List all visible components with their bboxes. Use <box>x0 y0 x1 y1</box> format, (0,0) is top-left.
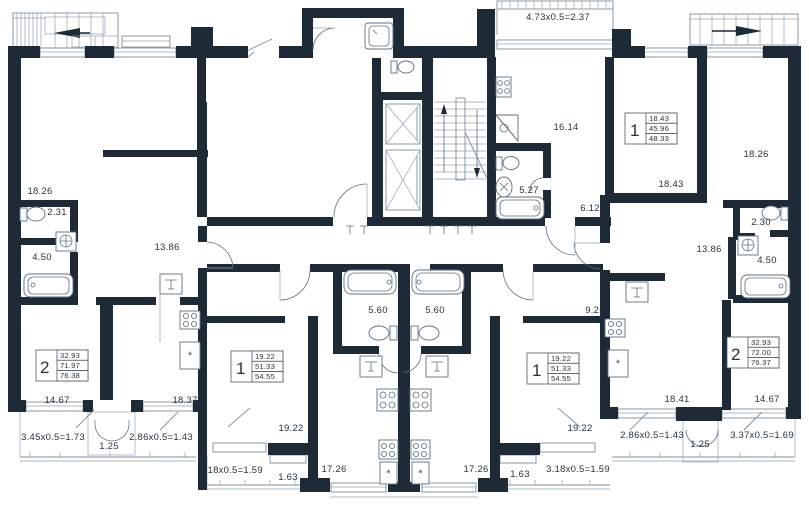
fridge-icon: * <box>412 462 429 484</box>
room-area-label: 2.31 <box>47 207 67 218</box>
sink-icon <box>738 236 758 255</box>
bathtub-icon <box>344 270 396 294</box>
balcony-dim-label: 3.45x0.5=1.73 <box>21 432 85 443</box>
room-area-label: 16.14 <box>553 122 578 133</box>
room-area-label: 18.41 <box>664 394 689 405</box>
room-area-label: 4.50 <box>32 252 52 263</box>
unit-area: 32.93 <box>60 351 80 360</box>
unit-table: 1 19.22 51.33 54.55 <box>527 353 579 384</box>
room-area-label: 6.12 <box>580 203 600 214</box>
unit-number: 1 <box>236 359 245 378</box>
stove-icon <box>379 440 398 459</box>
toilet-icon <box>369 326 397 340</box>
room-area-label: 17.26 <box>321 464 346 475</box>
room-area-label: 5.60 <box>368 305 388 316</box>
room-area-label: 19.22 <box>278 423 303 434</box>
bathtub-icon <box>24 274 73 297</box>
unit-area: 18.43 <box>649 114 669 123</box>
doors <box>76 28 762 430</box>
unit-area: 71.97 <box>60 361 80 370</box>
room-area-label: 13.86 <box>696 244 721 255</box>
walls <box>8 8 801 492</box>
room-area-label: 18.26 <box>27 186 52 197</box>
unit-table: 1 18.43 45.96 48.33 <box>625 113 677 144</box>
room-area-label: 18.26 <box>743 149 768 160</box>
bathtub-icon <box>412 270 464 294</box>
round-sink-icon <box>496 177 512 197</box>
unit-area: 54.55 <box>551 374 571 383</box>
unit-table: 2 32.93 71.97 76.38 <box>36 350 88 381</box>
sink-icon <box>56 232 76 251</box>
room-area-label: 9.25 <box>585 305 605 316</box>
vent-stub-icons <box>346 226 476 234</box>
stove-icon <box>411 440 430 459</box>
toilet-icon <box>20 207 45 221</box>
unit-area: 51.33 <box>255 362 275 371</box>
fridge-icon: * <box>180 342 200 369</box>
svg-text:*: * <box>616 358 621 370</box>
toilet-icon <box>496 157 519 171</box>
unit-area: 45.96 <box>649 124 669 133</box>
stove-icon <box>410 389 431 411</box>
bathtub-icon <box>741 275 790 298</box>
svg-text:*: * <box>386 468 391 480</box>
unit-area: 76.38 <box>60 371 80 380</box>
unit-area: 54.55 <box>255 372 275 381</box>
balcony-dim-label: 1.25 <box>99 441 119 452</box>
unit-number: 2 <box>40 358 49 377</box>
balcony-dim-label: 1.63 <box>510 469 530 480</box>
unit-area: 48.33 <box>649 134 669 143</box>
unit-area: 32.93 <box>751 338 771 347</box>
unit-area: 19.22 <box>551 354 571 363</box>
balcony-dim-label: 3.18x0.5=1.59 <box>546 464 610 475</box>
kitchen-sink-icon <box>360 356 382 377</box>
stove-icon <box>180 311 200 329</box>
unit-area: 51.33 <box>551 364 571 373</box>
balcony-dim-label: 2.86x0.5=1.43 <box>129 432 193 443</box>
unit-area: 76.37 <box>751 358 771 367</box>
unit-number: 1 <box>630 121 639 140</box>
floor-plan-page: * * * * 18.26 2.31 4.50 13.86 14.67 18.3… <box>0 0 809 508</box>
room-area-label: 14.67 <box>754 394 779 405</box>
room-area-label: 2.30 <box>751 217 771 228</box>
corner-sink-icon <box>496 115 518 141</box>
balcony-dim-label: 2.86x0.5=1.43 <box>620 430 684 441</box>
bathtub-icon <box>496 197 544 219</box>
stove-icon <box>496 77 511 97</box>
fridge-icon: * <box>380 462 397 484</box>
balcony-dim-label: 4.73x0.5=2.37 <box>526 12 590 23</box>
unit-area: 19.22 <box>255 352 275 361</box>
balcony-dim-label: 3.18x0.5=1.59 <box>199 465 263 476</box>
fridge-icon: * <box>608 350 628 377</box>
washer-icon <box>365 23 393 49</box>
kitchen-sink-icon <box>426 356 448 377</box>
unit-number: 2 <box>731 345 740 364</box>
room-area-label: 14.67 <box>44 395 69 406</box>
toilet-icon <box>391 61 414 73</box>
room-area-label: 19.22 <box>567 423 592 434</box>
room-area-label: 17.26 <box>463 464 488 475</box>
balcony-dim-label: 1.25 <box>690 439 710 450</box>
unit-table: 1 19.22 51.33 54.55 <box>231 351 283 382</box>
svg-text:*: * <box>188 350 193 362</box>
unit-number: 1 <box>532 361 541 380</box>
stairwell <box>434 98 487 180</box>
toilet-icon <box>411 326 439 340</box>
balcony-dim-label: 1.63 <box>278 472 298 483</box>
floor-plan-drawing: * * * * 18.26 2.31 4.50 13.86 14.67 18.3… <box>0 0 809 508</box>
room-area-label: 18.37 <box>172 395 197 406</box>
elevators <box>386 104 420 210</box>
unit-area: 72.00 <box>751 348 771 357</box>
room-area-label: 13.86 <box>154 242 179 253</box>
room-area-label: 5.60 <box>425 305 445 316</box>
room-area-label: 5.27 <box>519 185 539 196</box>
room-area-label: 4.50 <box>757 255 777 266</box>
unit-table: 2 32.93 72.00 76.37 <box>727 337 779 368</box>
balcony-dim-label: 3.37x0.5=1.69 <box>730 430 794 441</box>
kitchen-sink-icon <box>626 282 648 302</box>
stove-icon <box>377 389 398 411</box>
stove-icon <box>605 319 625 337</box>
kitchen-sink-icon <box>160 274 182 294</box>
room-area-label: 18.43 <box>658 179 683 190</box>
svg-text:*: * <box>418 468 423 480</box>
